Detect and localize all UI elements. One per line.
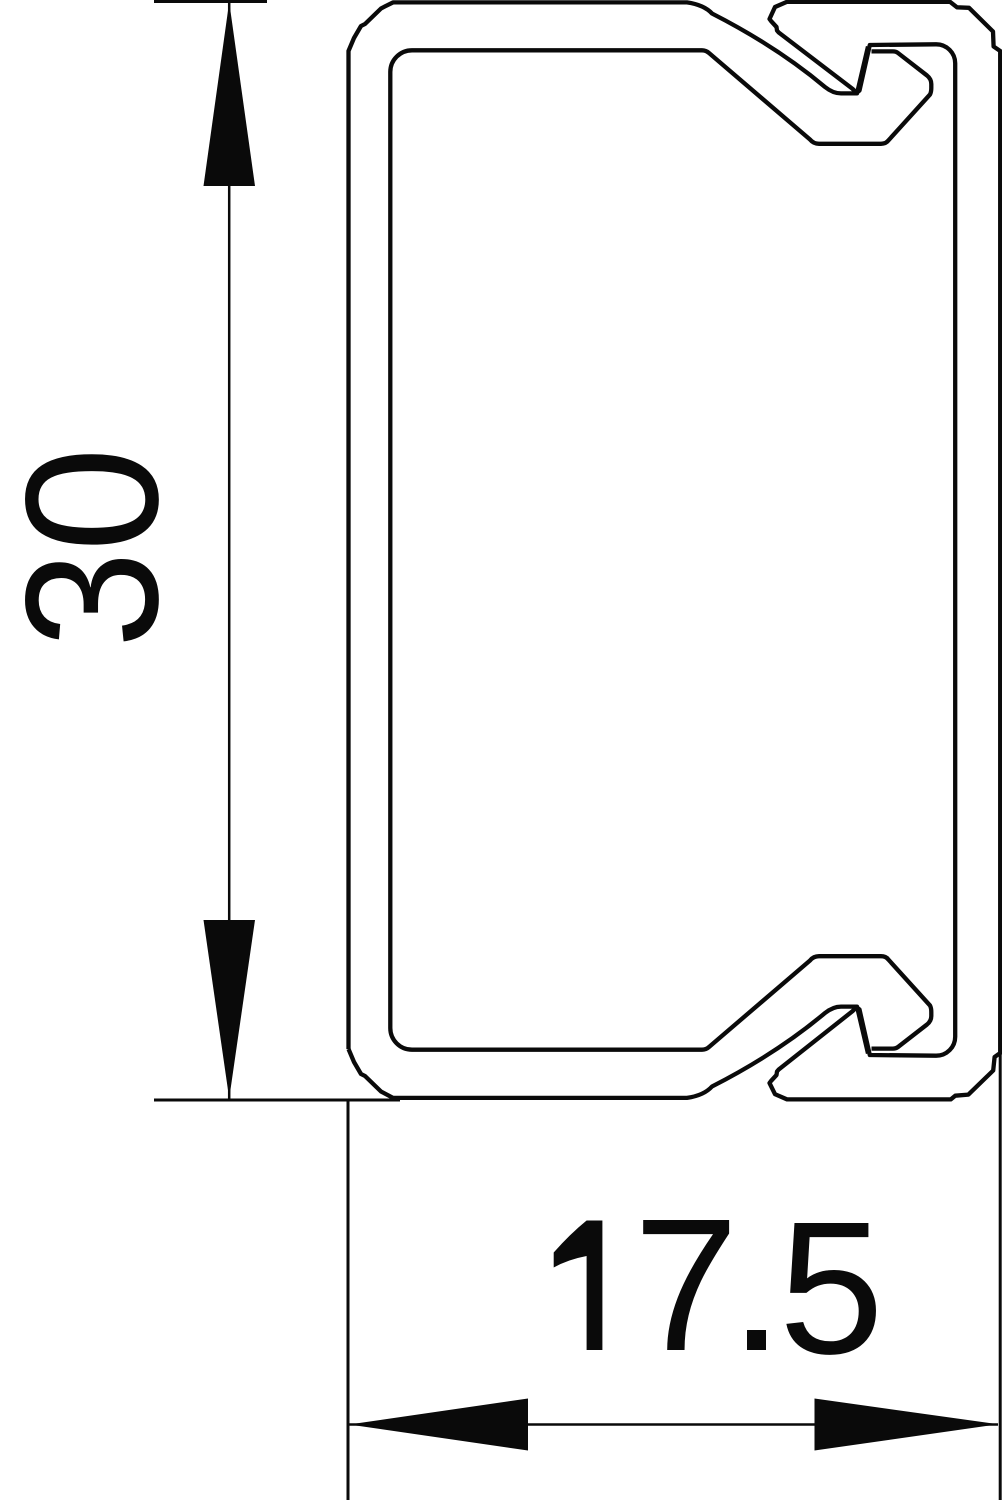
svg-text:5: 5 bbox=[779, 1183, 884, 1394]
svg-text:0: 0 bbox=[0, 447, 198, 552]
svg-text:7: 7 bbox=[634, 1180, 739, 1391]
svg-text:3: 3 bbox=[0, 551, 198, 648]
